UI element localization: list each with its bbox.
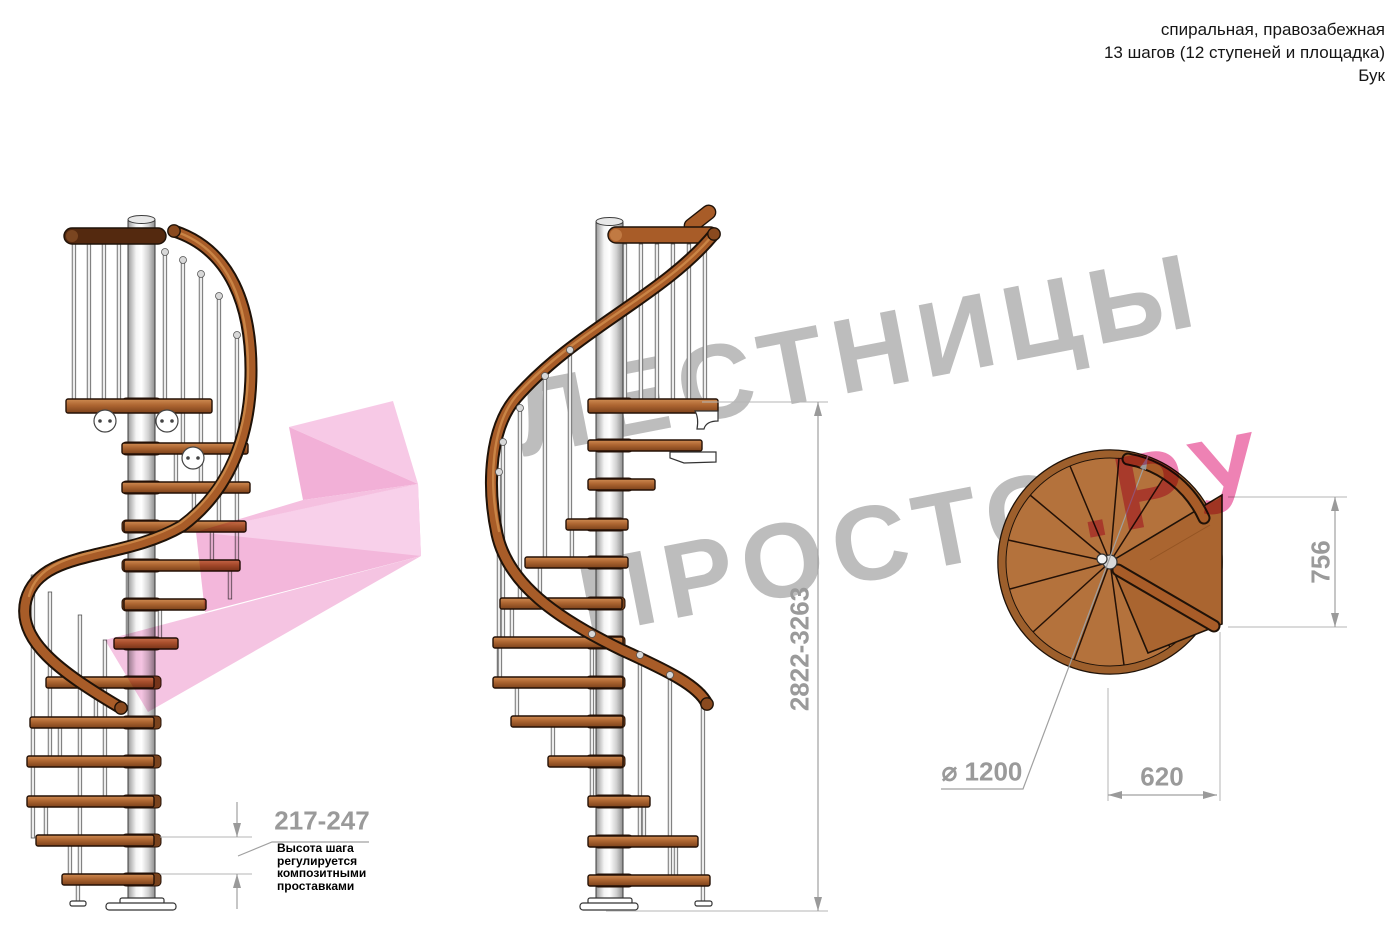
step-height-note: Высота шага регулируется композитными пр… bbox=[277, 842, 366, 892]
wall-bracket-1 bbox=[695, 411, 718, 429]
rail-end-highlight bbox=[66, 230, 78, 242]
technical-drawing bbox=[0, 0, 1400, 950]
title-block: спиральная, правозабежная 13 шагов (12 с… bbox=[1104, 18, 1385, 87]
title-type: спиральная, правозабежная bbox=[1104, 18, 1385, 41]
pole-cap-view1 bbox=[128, 216, 155, 224]
base-plate-view1 bbox=[106, 903, 176, 910]
pole-cap-view2 bbox=[596, 218, 623, 226]
dim-step-height: 217-247 bbox=[274, 806, 369, 837]
staircase-drawing-sheet: ЛЕСТНИЦЫ ПРОСТО.РУ bbox=[0, 0, 1400, 950]
platform-rail-view2 bbox=[608, 202, 718, 243]
rod-foot-view2 bbox=[695, 901, 712, 906]
title-material: Бук bbox=[1104, 64, 1385, 87]
side-view-rotated bbox=[491, 202, 720, 910]
title-steps: 13 шагов (12 ступеней и площадка) bbox=[1104, 41, 1385, 64]
dim-plan-width: 620 bbox=[1140, 762, 1183, 793]
plan-rail-ball bbox=[1097, 554, 1107, 564]
platform-rail-view1 bbox=[64, 228, 166, 244]
dim-diameter: ⌀ 1200 bbox=[942, 757, 1023, 788]
wall-bracket-2 bbox=[670, 452, 716, 463]
rod-foot-view1 bbox=[70, 901, 86, 906]
plan-view bbox=[998, 450, 1222, 674]
dim-plan-depth: 756 bbox=[1306, 540, 1337, 583]
base-plate-view2 bbox=[580, 903, 638, 910]
dim-total-height: 2822-3263 bbox=[785, 587, 816, 711]
side-view-front bbox=[25, 216, 251, 911]
